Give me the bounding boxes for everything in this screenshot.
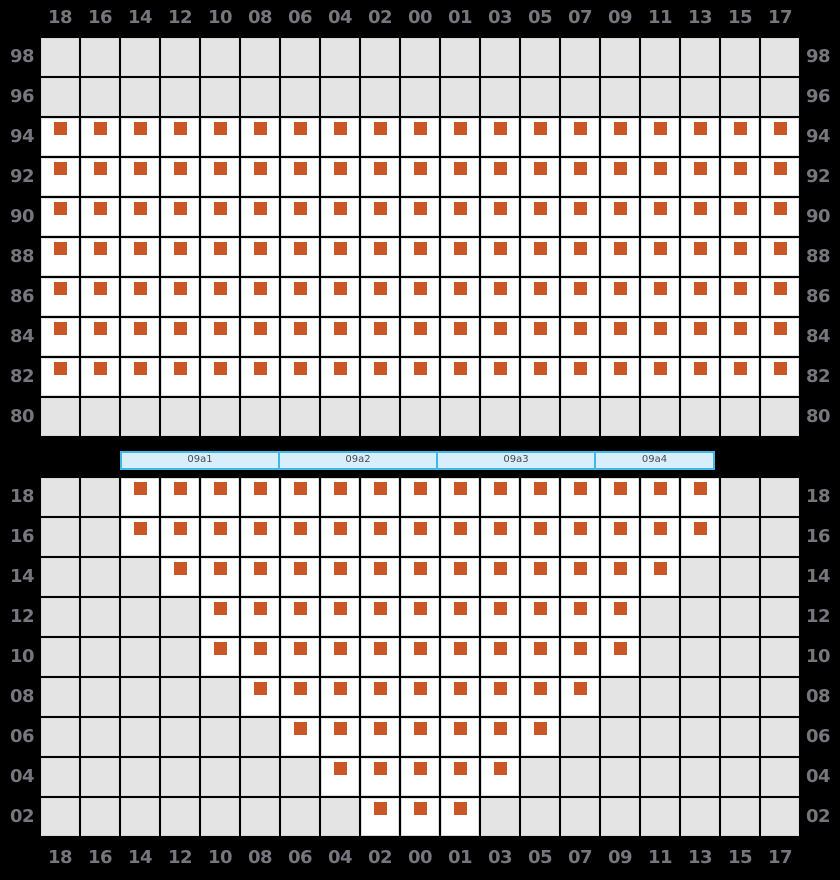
seat-cell[interactable] bbox=[121, 118, 159, 156]
seat-marker-icon bbox=[294, 122, 307, 135]
seat-cell[interactable] bbox=[481, 558, 519, 596]
seat-cell[interactable] bbox=[441, 198, 479, 236]
empty-cell bbox=[41, 398, 79, 436]
seat-cell[interactable] bbox=[641, 318, 679, 356]
seat-cell[interactable] bbox=[281, 358, 319, 396]
seat-cell[interactable] bbox=[281, 558, 319, 596]
seat-cell[interactable] bbox=[441, 238, 479, 276]
seat-marker-icon bbox=[214, 602, 227, 615]
seat-cell[interactable] bbox=[321, 238, 359, 276]
seat-cell[interactable] bbox=[321, 198, 359, 236]
seat-cell[interactable] bbox=[481, 598, 519, 636]
seat-cell[interactable] bbox=[201, 238, 239, 276]
seat-cell[interactable] bbox=[441, 358, 479, 396]
seat-marker-icon bbox=[334, 322, 347, 335]
seat-cell[interactable] bbox=[201, 598, 239, 636]
seat-cell[interactable] bbox=[401, 718, 439, 756]
seat-cell[interactable] bbox=[761, 358, 799, 396]
seat-cell[interactable] bbox=[681, 278, 719, 316]
seat-cell[interactable] bbox=[401, 158, 439, 196]
empty-cell bbox=[681, 398, 719, 436]
seat-marker-icon bbox=[254, 322, 267, 335]
empty-cell bbox=[241, 78, 279, 116]
seat-cell[interactable] bbox=[281, 678, 319, 716]
seat-cell[interactable] bbox=[361, 358, 399, 396]
seat-cell[interactable] bbox=[721, 118, 759, 156]
seat-cell[interactable] bbox=[441, 558, 479, 596]
seat-marker-icon bbox=[534, 122, 547, 135]
seat-cell[interactable] bbox=[481, 478, 519, 516]
seat-cell[interactable] bbox=[361, 558, 399, 596]
seat-marker-icon bbox=[534, 362, 547, 375]
seat-cell[interactable] bbox=[481, 278, 519, 316]
seat-cell[interactable] bbox=[561, 358, 599, 396]
row-label: 10 bbox=[806, 638, 840, 676]
seat-marker-icon bbox=[454, 562, 467, 575]
seat-cell[interactable] bbox=[241, 678, 279, 716]
seat-cell[interactable] bbox=[401, 678, 439, 716]
seat-cell[interactable] bbox=[201, 318, 239, 356]
seat-cell[interactable] bbox=[401, 798, 439, 836]
seat-cell[interactable] bbox=[121, 158, 159, 196]
seat-marker-icon bbox=[334, 562, 347, 575]
seat-cell[interactable] bbox=[641, 118, 679, 156]
column-header-label: 18 bbox=[40, 0, 80, 36]
seat-cell[interactable] bbox=[521, 478, 559, 516]
seat-cell[interactable] bbox=[481, 718, 519, 756]
seat-marker-icon bbox=[134, 322, 147, 335]
seat-cell[interactable] bbox=[561, 558, 599, 596]
seat-cell[interactable] bbox=[521, 718, 559, 756]
seat-cell[interactable] bbox=[321, 358, 359, 396]
empty-cell bbox=[681, 558, 719, 596]
seat-cell[interactable] bbox=[441, 798, 479, 836]
seat-cell[interactable] bbox=[521, 198, 559, 236]
seat-cell[interactable] bbox=[281, 598, 319, 636]
seat-cell[interactable] bbox=[241, 518, 279, 556]
seat-cell[interactable] bbox=[721, 358, 759, 396]
seat-cell[interactable] bbox=[521, 638, 559, 676]
seat-cell[interactable] bbox=[521, 358, 559, 396]
seat-cell[interactable] bbox=[321, 278, 359, 316]
seat-cell[interactable] bbox=[401, 478, 439, 516]
seat-cell[interactable] bbox=[321, 598, 359, 636]
seat-cell[interactable] bbox=[161, 198, 199, 236]
seat-cell[interactable] bbox=[441, 478, 479, 516]
seat-cell[interactable] bbox=[521, 518, 559, 556]
seat-cell[interactable] bbox=[401, 518, 439, 556]
seat-cell[interactable] bbox=[441, 718, 479, 756]
seat-cell[interactable] bbox=[41, 318, 79, 356]
seat-cell[interactable] bbox=[161, 118, 199, 156]
seat-cell[interactable] bbox=[521, 278, 559, 316]
seat-cell[interactable] bbox=[681, 238, 719, 276]
seat-marker-icon bbox=[294, 202, 307, 215]
section-bar: 09a109a209a309a4 bbox=[120, 451, 715, 470]
seat-cell[interactable] bbox=[441, 318, 479, 356]
seat-cell[interactable] bbox=[161, 518, 199, 556]
seat-cell[interactable] bbox=[401, 198, 439, 236]
seat-cell[interactable] bbox=[201, 478, 239, 516]
seat-cell[interactable] bbox=[241, 278, 279, 316]
seat-cell[interactable] bbox=[401, 238, 439, 276]
seat-cell[interactable] bbox=[321, 678, 359, 716]
seat-cell[interactable] bbox=[561, 318, 599, 356]
seat-cell[interactable] bbox=[281, 638, 319, 676]
seat-cell[interactable] bbox=[321, 638, 359, 676]
seat-cell[interactable] bbox=[441, 278, 479, 316]
seat-cell[interactable] bbox=[641, 518, 679, 556]
seat-marker-icon bbox=[54, 322, 67, 335]
seat-cell[interactable] bbox=[521, 598, 559, 636]
seat-cell[interactable] bbox=[561, 678, 599, 716]
seat-cell[interactable] bbox=[121, 238, 159, 276]
seat-cell[interactable] bbox=[761, 198, 799, 236]
seat-cell[interactable] bbox=[41, 158, 79, 196]
seat-cell[interactable] bbox=[641, 478, 679, 516]
seat-marker-icon bbox=[734, 162, 747, 175]
seat-cell[interactable] bbox=[681, 358, 719, 396]
seat-cell[interactable] bbox=[361, 478, 399, 516]
seat-cell[interactable] bbox=[161, 278, 199, 316]
seat-cell[interactable] bbox=[361, 718, 399, 756]
empty-cell bbox=[121, 38, 159, 76]
empty-cell bbox=[201, 718, 239, 756]
seat-cell[interactable] bbox=[401, 358, 439, 396]
seat-cell[interactable] bbox=[201, 278, 239, 316]
seat-cell[interactable] bbox=[721, 238, 759, 276]
section-segment: 09a4 bbox=[594, 451, 715, 470]
seat-cell[interactable] bbox=[161, 358, 199, 396]
seat-marker-icon bbox=[694, 322, 707, 335]
seat-cell[interactable] bbox=[361, 238, 399, 276]
seat-cell[interactable] bbox=[321, 318, 359, 356]
seat-cell[interactable] bbox=[561, 238, 599, 276]
seat-cell[interactable] bbox=[201, 638, 239, 676]
seat-cell[interactable] bbox=[441, 158, 479, 196]
empty-cell bbox=[481, 398, 519, 436]
seat-cell[interactable] bbox=[761, 118, 799, 156]
empty-cell bbox=[121, 758, 159, 796]
seat-cell[interactable] bbox=[521, 158, 559, 196]
seat-cell[interactable] bbox=[481, 678, 519, 716]
seat-cell[interactable] bbox=[601, 478, 639, 516]
seat-cell[interactable] bbox=[761, 318, 799, 356]
seat-cell[interactable] bbox=[521, 678, 559, 716]
seat-cell[interactable] bbox=[161, 318, 199, 356]
seat-cell[interactable] bbox=[81, 198, 119, 236]
seat-cell[interactable] bbox=[681, 158, 719, 196]
seat-cell[interactable] bbox=[761, 238, 799, 276]
seat-cell[interactable] bbox=[561, 118, 599, 156]
empty-cell bbox=[361, 38, 399, 76]
seat-cell[interactable] bbox=[601, 238, 639, 276]
seat-cell[interactable] bbox=[121, 518, 159, 556]
seat-cell[interactable] bbox=[721, 198, 759, 236]
seat-cell[interactable] bbox=[641, 558, 679, 596]
seat-cell[interactable] bbox=[401, 598, 439, 636]
seat-cell[interactable] bbox=[241, 478, 279, 516]
seat-cell[interactable] bbox=[401, 558, 439, 596]
seat-cell[interactable] bbox=[601, 598, 639, 636]
seat-cell[interactable] bbox=[601, 638, 639, 676]
seat-cell[interactable] bbox=[121, 478, 159, 516]
seat-cell[interactable] bbox=[561, 478, 599, 516]
seat-marker-icon bbox=[654, 562, 667, 575]
seat-cell[interactable] bbox=[361, 318, 399, 356]
seat-cell[interactable] bbox=[361, 518, 399, 556]
seat-cell[interactable] bbox=[41, 118, 79, 156]
seat-cell[interactable] bbox=[681, 518, 719, 556]
seat-cell[interactable] bbox=[441, 518, 479, 556]
seat-cell[interactable] bbox=[561, 158, 599, 196]
seat-cell[interactable] bbox=[281, 198, 319, 236]
seat-cell[interactable] bbox=[361, 758, 399, 796]
seat-cell[interactable] bbox=[521, 118, 559, 156]
seat-cell[interactable] bbox=[321, 758, 359, 796]
seat-cell[interactable] bbox=[161, 238, 199, 276]
seat-cell[interactable] bbox=[121, 318, 159, 356]
seat-cell[interactable] bbox=[441, 118, 479, 156]
seat-cell[interactable] bbox=[601, 158, 639, 196]
seat-cell[interactable] bbox=[81, 278, 119, 316]
seat-cell[interactable] bbox=[161, 158, 199, 196]
seat-cell[interactable] bbox=[601, 118, 639, 156]
seat-cell[interactable] bbox=[81, 358, 119, 396]
lower-seat-grid bbox=[41, 478, 799, 836]
seat-marker-icon bbox=[774, 322, 787, 335]
seat-marker-icon bbox=[614, 522, 627, 535]
seat-cell[interactable] bbox=[681, 118, 719, 156]
empty-cell bbox=[641, 758, 679, 796]
seat-cell[interactable] bbox=[521, 238, 559, 276]
seat-cell[interactable] bbox=[281, 158, 319, 196]
seat-marker-icon bbox=[294, 642, 307, 655]
seat-cell[interactable] bbox=[401, 278, 439, 316]
seat-cell[interactable] bbox=[481, 118, 519, 156]
seat-cell[interactable] bbox=[201, 558, 239, 596]
seat-cell[interactable] bbox=[681, 198, 719, 236]
seat-cell[interactable] bbox=[281, 278, 319, 316]
seat-cell[interactable] bbox=[601, 558, 639, 596]
seat-marker-icon bbox=[414, 722, 427, 735]
seat-cell[interactable] bbox=[601, 358, 639, 396]
seat-cell[interactable] bbox=[81, 158, 119, 196]
seat-cell[interactable] bbox=[41, 238, 79, 276]
seat-cell[interactable] bbox=[601, 518, 639, 556]
seat-cell[interactable] bbox=[201, 158, 239, 196]
seat-marker-icon bbox=[734, 282, 747, 295]
seat-cell[interactable] bbox=[641, 198, 679, 236]
seat-cell[interactable] bbox=[441, 598, 479, 636]
seat-cell[interactable] bbox=[561, 278, 599, 316]
empty-cell bbox=[281, 38, 319, 76]
seat-cell[interactable] bbox=[241, 598, 279, 636]
seat-cell[interactable] bbox=[721, 158, 759, 196]
seat-marker-icon bbox=[374, 802, 387, 815]
seat-cell[interactable] bbox=[361, 598, 399, 636]
seat-marker-icon bbox=[94, 242, 107, 255]
seat-marker-icon bbox=[654, 242, 667, 255]
seat-cell[interactable] bbox=[321, 118, 359, 156]
seat-marker-icon bbox=[694, 362, 707, 375]
seat-cell[interactable] bbox=[361, 638, 399, 676]
seat-cell[interactable] bbox=[401, 118, 439, 156]
seat-cell[interactable] bbox=[281, 318, 319, 356]
seat-cell[interactable] bbox=[641, 358, 679, 396]
upper-seat-grid bbox=[41, 38, 799, 436]
seat-marker-icon bbox=[374, 282, 387, 295]
seat-cell[interactable] bbox=[361, 798, 399, 836]
column-header-label: 00 bbox=[400, 840, 440, 876]
seat-cell[interactable] bbox=[201, 518, 239, 556]
seat-cell[interactable] bbox=[321, 158, 359, 196]
seat-cell[interactable] bbox=[241, 118, 279, 156]
seat-cell[interactable] bbox=[481, 198, 519, 236]
seat-marker-icon bbox=[614, 162, 627, 175]
seat-cell[interactable] bbox=[641, 278, 679, 316]
seat-cell[interactable] bbox=[601, 278, 639, 316]
empty-cell bbox=[681, 798, 719, 836]
seat-cell[interactable] bbox=[161, 478, 199, 516]
seat-cell[interactable] bbox=[81, 238, 119, 276]
seat-cell[interactable] bbox=[521, 558, 559, 596]
seat-marker-icon bbox=[374, 642, 387, 655]
seat-cell[interactable] bbox=[281, 238, 319, 276]
seat-cell[interactable] bbox=[241, 198, 279, 236]
seat-cell[interactable] bbox=[681, 478, 719, 516]
seat-cell[interactable] bbox=[561, 518, 599, 556]
seat-marker-icon bbox=[214, 642, 227, 655]
seat-cell[interactable] bbox=[321, 478, 359, 516]
seat-cell[interactable] bbox=[601, 318, 639, 356]
seat-cell[interactable] bbox=[481, 758, 519, 796]
seat-cell[interactable] bbox=[601, 198, 639, 236]
seat-marker-icon bbox=[334, 122, 347, 135]
seat-marker-icon bbox=[254, 602, 267, 615]
seat-cell[interactable] bbox=[721, 278, 759, 316]
seat-cell[interactable] bbox=[521, 318, 559, 356]
seat-cell[interactable] bbox=[401, 318, 439, 356]
empty-cell bbox=[561, 398, 599, 436]
seat-cell[interactable] bbox=[41, 198, 79, 236]
seat-cell[interactable] bbox=[201, 358, 239, 396]
seat-cell[interactable] bbox=[361, 278, 399, 316]
seat-cell[interactable] bbox=[481, 638, 519, 676]
seat-cell[interactable] bbox=[281, 478, 319, 516]
seat-cell[interactable] bbox=[481, 318, 519, 356]
seat-cell[interactable] bbox=[281, 718, 319, 756]
seat-cell[interactable] bbox=[281, 118, 319, 156]
empty-cell bbox=[721, 798, 759, 836]
seat-cell[interactable] bbox=[441, 758, 479, 796]
seat-cell[interactable] bbox=[81, 318, 119, 356]
seat-cell[interactable] bbox=[41, 278, 79, 316]
seat-cell[interactable] bbox=[161, 558, 199, 596]
seat-cell[interactable] bbox=[361, 118, 399, 156]
seat-cell[interactable] bbox=[241, 358, 279, 396]
seat-cell[interactable] bbox=[241, 318, 279, 356]
seat-marker-icon bbox=[774, 282, 787, 295]
empty-cell bbox=[241, 798, 279, 836]
seat-cell[interactable] bbox=[361, 158, 399, 196]
seat-cell[interactable] bbox=[481, 238, 519, 276]
seat-cell[interactable] bbox=[441, 678, 479, 716]
seat-marker-icon bbox=[454, 202, 467, 215]
column-header-label: 05 bbox=[520, 0, 560, 36]
seat-cell[interactable] bbox=[561, 198, 599, 236]
seat-cell[interactable] bbox=[281, 518, 319, 556]
seat-cell[interactable] bbox=[121, 278, 159, 316]
seat-cell[interactable] bbox=[481, 158, 519, 196]
seat-cell[interactable] bbox=[201, 198, 239, 236]
seat-cell[interactable] bbox=[681, 318, 719, 356]
empty-cell bbox=[41, 598, 79, 636]
seat-marker-icon bbox=[574, 162, 587, 175]
empty-cell bbox=[641, 718, 679, 756]
seat-cell[interactable] bbox=[761, 278, 799, 316]
seat-cell[interactable] bbox=[761, 158, 799, 196]
row-label: 96 bbox=[0, 78, 34, 116]
seat-cell[interactable] bbox=[41, 358, 79, 396]
seat-marker-icon bbox=[134, 162, 147, 175]
seat-marker-icon bbox=[414, 362, 427, 375]
seat-cell[interactable] bbox=[321, 558, 359, 596]
seat-marker-icon bbox=[134, 242, 147, 255]
seat-cell[interactable] bbox=[401, 638, 439, 676]
seat-marker-icon bbox=[254, 282, 267, 295]
column-header-label: 03 bbox=[480, 840, 520, 876]
seat-cell[interactable] bbox=[401, 758, 439, 796]
row-label: 16 bbox=[0, 518, 34, 556]
seat-cell[interactable] bbox=[641, 158, 679, 196]
empty-cell bbox=[761, 718, 799, 756]
seat-cell[interactable] bbox=[201, 118, 239, 156]
seat-cell[interactable] bbox=[321, 718, 359, 756]
seat-cell[interactable] bbox=[441, 638, 479, 676]
seat-marker-icon bbox=[54, 202, 67, 215]
seat-cell[interactable] bbox=[561, 638, 599, 676]
empty-cell bbox=[401, 38, 439, 76]
column-header-label: 18 bbox=[40, 840, 80, 876]
seat-cell[interactable] bbox=[241, 238, 279, 276]
seat-marker-icon bbox=[574, 642, 587, 655]
seat-cell[interactable] bbox=[721, 318, 759, 356]
seat-cell[interactable] bbox=[361, 678, 399, 716]
seat-cell[interactable] bbox=[81, 118, 119, 156]
empty-cell bbox=[41, 78, 79, 116]
seat-marker-icon bbox=[694, 122, 707, 135]
empty-cell bbox=[721, 598, 759, 636]
seat-cell[interactable] bbox=[241, 638, 279, 676]
seat-cell[interactable] bbox=[241, 558, 279, 596]
empty-cell bbox=[321, 398, 359, 436]
seat-cell[interactable] bbox=[481, 518, 519, 556]
seat-marker-icon bbox=[414, 202, 427, 215]
seat-cell[interactable] bbox=[561, 598, 599, 636]
seat-cell[interactable] bbox=[241, 158, 279, 196]
seat-cell[interactable] bbox=[121, 198, 159, 236]
seat-cell[interactable] bbox=[321, 518, 359, 556]
seat-cell[interactable] bbox=[121, 358, 159, 396]
seat-marker-icon bbox=[134, 282, 147, 295]
seat-cell[interactable] bbox=[481, 358, 519, 396]
column-header-label: 04 bbox=[320, 840, 360, 876]
seat-marker-icon bbox=[414, 522, 427, 535]
seat-cell[interactable] bbox=[361, 198, 399, 236]
seat-cell[interactable] bbox=[641, 238, 679, 276]
empty-cell bbox=[81, 38, 119, 76]
